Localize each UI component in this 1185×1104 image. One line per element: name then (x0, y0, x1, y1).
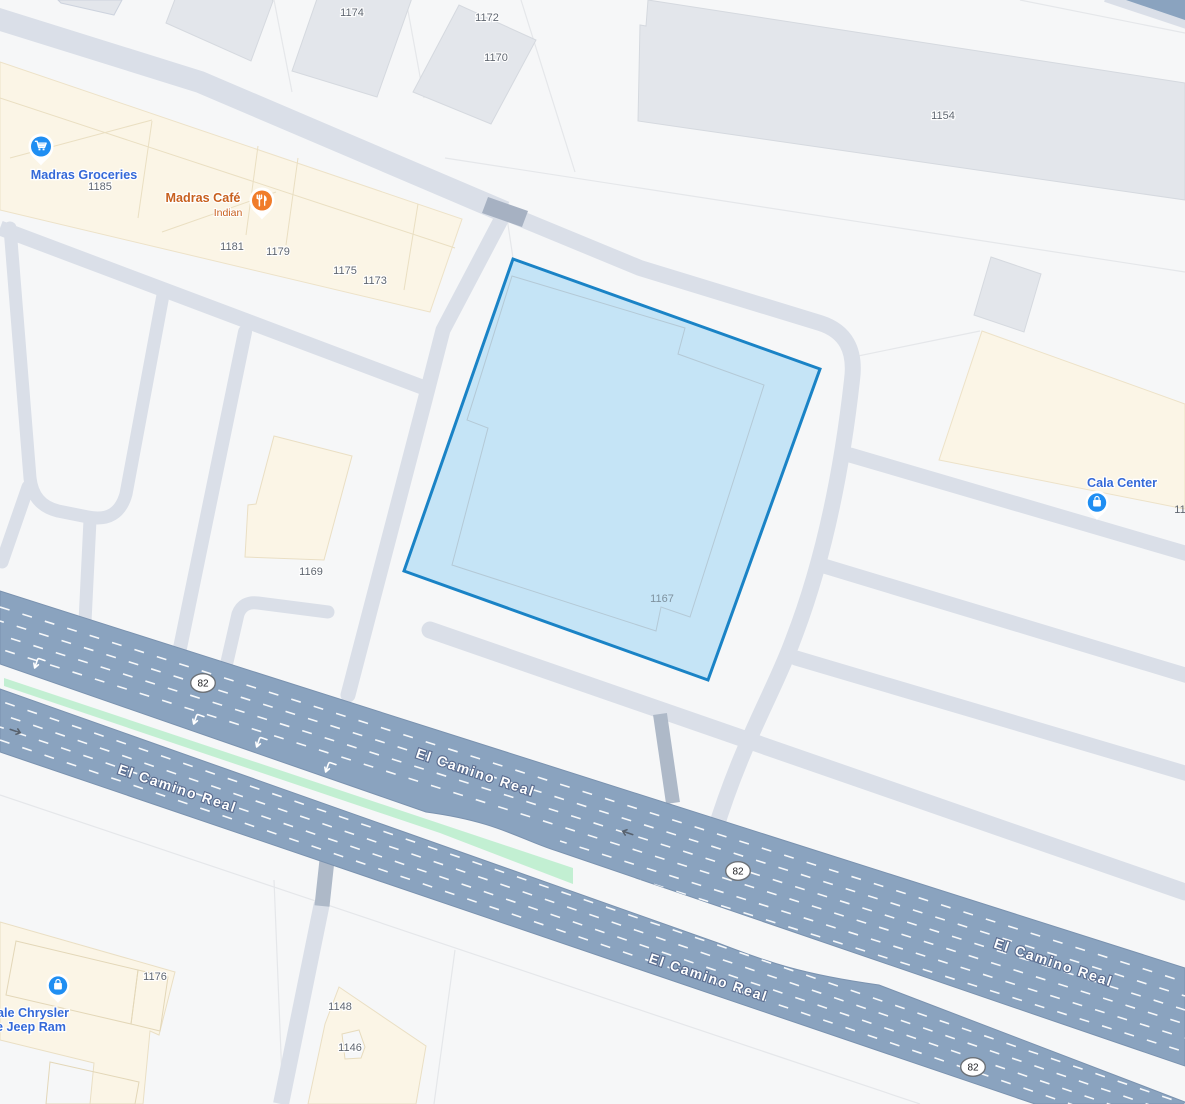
svg-text:82: 82 (967, 1063, 979, 1074)
svg-text:1154: 1154 (931, 110, 955, 122)
svg-text:1167: 1167 (650, 593, 674, 605)
svg-text:ale Chrysler: ale Chrysler (0, 1006, 69, 1020)
svg-text:1173: 1173 (363, 275, 387, 287)
svg-text:Madras Café: Madras Café (166, 191, 241, 205)
svg-text:1185: 1185 (88, 181, 112, 193)
svg-text:1172: 1172 (475, 12, 499, 24)
svg-text:1174: 1174 (340, 7, 364, 19)
svg-text:Madras Groceries: Madras Groceries (31, 168, 137, 182)
svg-text:82: 82 (197, 679, 209, 690)
svg-text:1179: 1179 (266, 246, 290, 258)
svg-text:82: 82 (732, 867, 744, 878)
svg-text:e Jeep Ram: e Jeep Ram (0, 1020, 66, 1034)
svg-text:1169: 1169 (299, 566, 323, 578)
svg-text:Indian: Indian (214, 207, 243, 219)
svg-text:1146: 1146 (338, 1042, 362, 1054)
svg-text:1181: 1181 (220, 241, 244, 253)
svg-text:11: 11 (1174, 504, 1185, 516)
svg-text:1176: 1176 (143, 971, 167, 983)
svg-text:1175: 1175 (333, 265, 357, 277)
svg-text:1170: 1170 (484, 52, 508, 64)
svg-text:1148: 1148 (328, 1001, 352, 1013)
svg-text:Cala Center: Cala Center (1087, 476, 1157, 490)
